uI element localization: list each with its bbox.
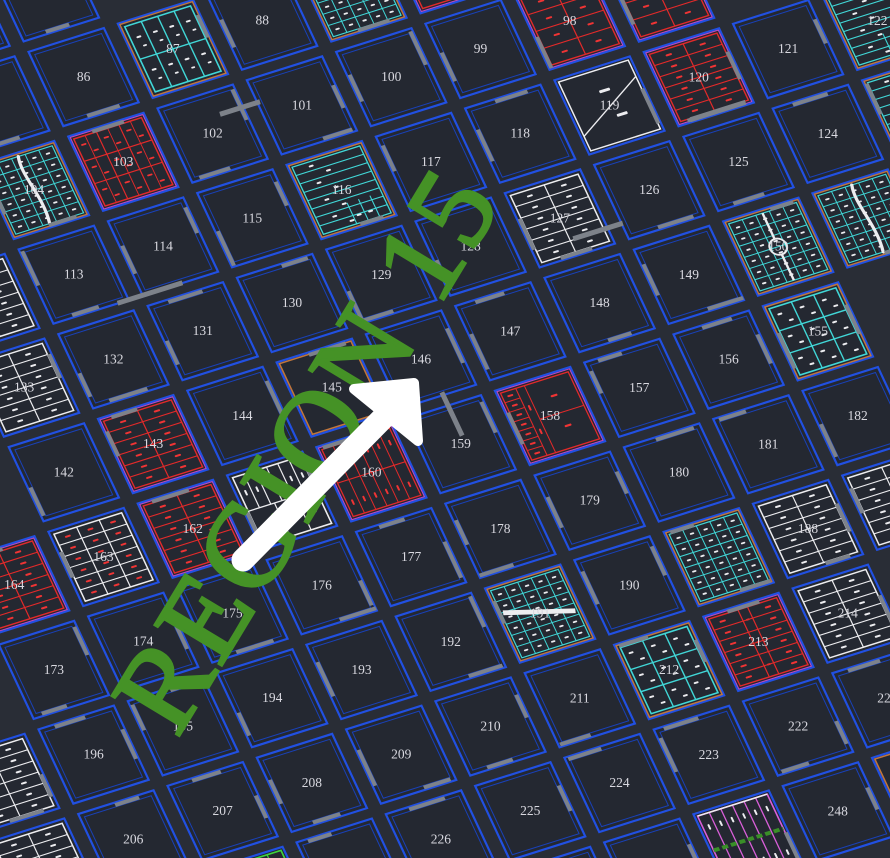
svg-text:196: 196 [83, 747, 104, 762]
svg-text:181: 181 [758, 436, 778, 451]
svg-text:127: 127 [550, 210, 571, 225]
svg-text:207: 207 [212, 803, 233, 818]
svg-text:104: 104 [24, 182, 45, 197]
svg-text:182: 182 [847, 408, 867, 423]
svg-text:126: 126 [639, 182, 660, 197]
svg-text:206: 206 [123, 831, 144, 846]
svg-text:120: 120 [689, 69, 710, 84]
svg-text:102: 102 [202, 126, 222, 141]
svg-text:147: 147 [500, 323, 521, 338]
svg-text:142: 142 [54, 464, 74, 479]
svg-text:176: 176 [312, 577, 333, 592]
svg-text:133: 133 [14, 380, 35, 395]
svg-text:213: 213 [748, 634, 769, 649]
svg-text:125: 125 [728, 154, 749, 169]
svg-text:87: 87 [166, 41, 180, 56]
svg-text:208: 208 [302, 775, 323, 790]
svg-text:156: 156 [718, 352, 739, 367]
svg-text:190: 190 [619, 577, 640, 592]
svg-text:212: 212 [659, 662, 679, 677]
svg-text:100: 100 [381, 69, 402, 84]
svg-text:222: 222 [788, 719, 808, 734]
svg-text:178: 178 [490, 521, 511, 536]
svg-text:116: 116 [332, 182, 352, 197]
svg-text:214: 214 [838, 606, 859, 621]
svg-text:130: 130 [282, 295, 303, 310]
svg-text:173: 173 [44, 662, 65, 677]
svg-text:224: 224 [609, 775, 630, 790]
svg-text:210: 210 [480, 719, 501, 734]
svg-text:225: 225 [520, 803, 541, 818]
svg-text:143: 143 [143, 436, 164, 451]
svg-text:177: 177 [401, 549, 422, 564]
svg-text:194: 194 [262, 690, 283, 705]
svg-text:124: 124 [818, 126, 839, 141]
svg-text:149: 149 [679, 267, 700, 282]
svg-text:88: 88 [255, 13, 269, 28]
svg-text:164: 164 [4, 577, 25, 592]
svg-text:221: 221 [877, 690, 890, 705]
svg-text:248: 248 [828, 803, 849, 818]
svg-text:118: 118 [510, 126, 530, 141]
svg-text:180: 180 [669, 465, 690, 480]
svg-text:99: 99 [474, 41, 488, 56]
svg-text:155: 155 [808, 323, 829, 338]
svg-text:157: 157 [629, 380, 650, 395]
svg-text:98: 98 [563, 13, 577, 28]
svg-text:119: 119 [600, 98, 620, 113]
svg-text:131: 131 [193, 323, 213, 338]
svg-text:103: 103 [113, 154, 134, 169]
svg-text:211: 211 [570, 690, 590, 705]
svg-text:159: 159 [451, 436, 472, 451]
svg-text:226: 226 [431, 831, 452, 846]
svg-text:191: 191 [530, 606, 550, 621]
svg-text:192: 192 [441, 634, 461, 649]
svg-text:122: 122 [867, 13, 887, 28]
svg-text:113: 113 [64, 267, 84, 282]
svg-text:158: 158 [540, 408, 561, 423]
svg-text:115: 115 [242, 210, 262, 225]
svg-text:86: 86 [77, 69, 91, 84]
svg-text:163: 163 [93, 549, 114, 564]
svg-text:148: 148 [589, 295, 610, 310]
svg-text:150: 150 [768, 239, 789, 254]
svg-text:188: 188 [798, 521, 819, 536]
svg-text:223: 223 [699, 747, 720, 762]
svg-text:209: 209 [391, 747, 412, 762]
svg-text:114: 114 [153, 239, 173, 254]
svg-text:193: 193 [351, 662, 372, 677]
svg-text:179: 179 [580, 493, 601, 508]
svg-text:121: 121 [778, 41, 798, 56]
svg-text:101: 101 [292, 97, 312, 112]
svg-text:132: 132 [103, 351, 123, 366]
